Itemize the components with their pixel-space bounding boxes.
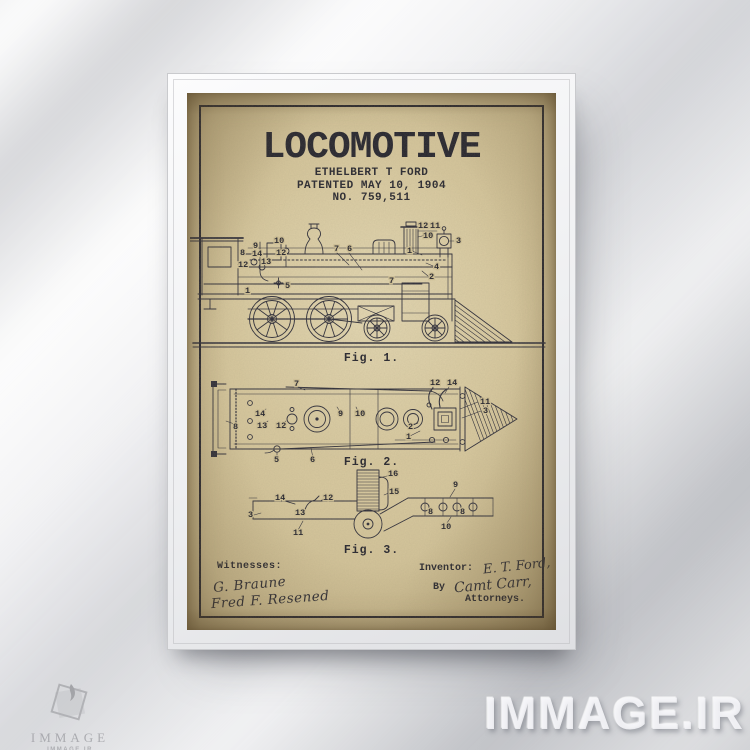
figure-3-drawing: 161514121331198810 [245,467,505,552]
corner-logo: IMMAGE IMMAGE.IR [14,678,126,750]
figure-reference-numeral: 12 [238,260,248,270]
witnesses-block: Witnesses: G. Braune Fred F. Resened [217,561,330,608]
figure-1-caption: Fig. 1. [187,352,556,365]
figure-2-drawing: 7121411314131289102156 [210,379,540,464]
figure-reference-numeral: 12 [418,221,428,231]
patent-date-line: PATENTED MAY 10, 1904 [187,180,556,193]
figure-reference-numeral: 13 [295,508,305,518]
figure-reference-numeral: 10 [441,522,451,532]
figure-reference-numeral: 3 [248,510,253,520]
figure-reference-numeral: 7 [334,244,339,254]
inventor-name-line: ETHELBERT T FORD [187,167,556,180]
poster-paper: LOCOMOTIVE ETHELBERT T FORD PATENTED MAY… [187,93,556,630]
figure-reference-numeral: 6 [347,244,352,254]
figure-reference-numeral: 2 [408,422,413,432]
figure-reference-numeral: 3 [483,406,488,416]
figure-reference-numeral: 1 [245,286,250,296]
figure-reference-numeral: 13 [257,421,267,431]
figure-3-caption: Fig. 3. [187,544,556,557]
figure-1-drawing: 891410121312765171211101342 [190,221,548,352]
figure-reference-numeral: 12 [276,421,286,431]
inventor-block: Inventor: E. T. Ford, By Camt Carr, Atto… [419,557,555,605]
figure-reference-numeral: 15 [389,487,399,497]
figure-reference-numeral: 3 [456,236,461,246]
inventor-heading: Inventor: [419,563,473,574]
logo-brand: IMMAGE [14,730,126,746]
logo-diamond-icon [47,678,93,724]
attorneys-label: Attorneys. [465,594,555,605]
figure-reference-numeral: 1 [407,246,412,256]
figure-reference-numeral: 14 [447,379,457,388]
patent-subtitle: ETHELBERT T FORD PATENTED MAY 10, 1904 N… [187,167,556,205]
figure-reference-numeral: 5 [285,281,290,291]
figure-reference-numeral: 11 [430,221,440,231]
figure-reference-numeral: 12 [430,379,440,388]
figure-reference-numeral: 10 [423,231,433,241]
watermark-text: IMMAGE.IR [485,688,746,740]
picture-frame: LOCOMOTIVE ETHELBERT T FORD PATENTED MAY… [167,73,576,650]
figure-reference-numeral: 9 [338,409,343,419]
patent-number-line: NO. 759,511 [187,192,556,205]
figure-reference-numeral: 2 [429,272,434,282]
by-label: By [433,582,445,593]
figure-reference-numeral: 8 [240,248,245,258]
figure-reference-numeral: 8 [428,507,433,517]
figure-reference-numeral: 14 [255,409,265,419]
product-photo: LOCOMOTIVE ETHELBERT T FORD PATENTED MAY… [0,0,750,750]
figure-1: 891410121312765171211101342 [190,221,548,357]
figure-reference-numeral: 11 [293,528,303,538]
figure-reference-numeral: 8 [460,507,465,517]
figure-reference-numeral: 8 [233,422,238,432]
figure-reference-numeral: 7 [389,276,394,286]
figure-reference-numeral: 4 [434,262,439,272]
figure-reference-numeral: 1 [406,432,411,442]
figure-reference-numeral: 12 [276,248,286,258]
figure-reference-numeral: 9 [453,480,458,490]
figure-reference-numeral: 10 [274,236,284,246]
figure-reference-numeral: 13 [261,257,271,267]
figure-reference-numeral: 10 [355,409,365,419]
figure-reference-numeral: 12 [323,493,333,503]
attorney-signature: Camt Carr, [454,574,533,597]
patent-title: LOCOMOTIVE [187,126,556,169]
figure-reference-numeral: 16 [388,469,398,479]
figure-reference-numeral: 14 [275,493,285,503]
figure-reference-numeral: 7 [294,379,299,389]
